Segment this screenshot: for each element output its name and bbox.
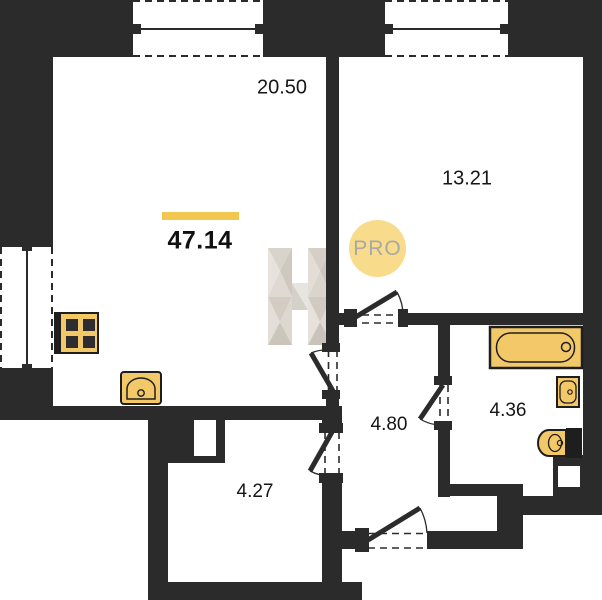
- room-label-hallway: 4.80: [371, 414, 408, 436]
- floor-plan: PRO: [0, 0, 602, 600]
- room-label-storage: 4.27: [237, 481, 274, 503]
- total-area-label: 47.14: [167, 227, 232, 256]
- room-label-bedroom: 13.21: [442, 168, 492, 191]
- bathtub-icon: [490, 327, 582, 368]
- door-symbol-bathroom: [420, 376, 452, 430]
- door-symbol-bedroom: [344, 292, 408, 327]
- stove-icon: [55, 313, 98, 353]
- door-symbol-storage: [310, 423, 343, 483]
- room-label-living: 20.50: [257, 77, 307, 100]
- door-symbol-living-hall: [311, 343, 340, 399]
- toilet-icon: [538, 428, 582, 458]
- total-area-underline: [162, 212, 239, 220]
- washbasin-icon: [557, 377, 579, 407]
- kitchen-sink-icon: [121, 372, 161, 404]
- door-symbol-entrance: [355, 508, 427, 552]
- room-label-bathroom: 4.36: [490, 400, 527, 422]
